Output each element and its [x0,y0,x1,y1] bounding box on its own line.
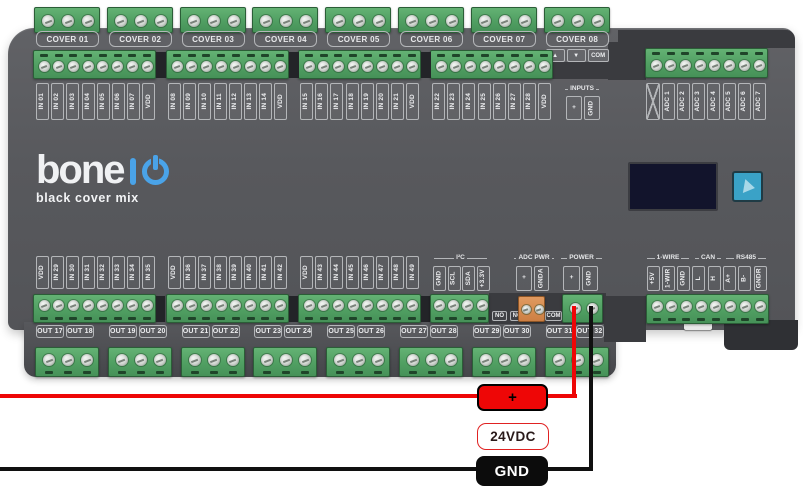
terminal-screw [695,60,706,71]
i2c-pin-label-text: SDA [465,271,472,285]
wire-slot [156,371,164,374]
terminal-screw [127,61,138,72]
terminal-screw [465,61,476,72]
terminal-screw [216,61,227,72]
input-label-text: IN 07 [130,93,137,110]
input-label-text: IN 49 [410,264,417,281]
wire-slot [349,54,357,57]
wire-slot [301,371,309,374]
wire-slot [118,371,126,374]
input-label: VDD [36,256,49,289]
input-label-text: IN 21 [394,93,401,110]
wire-slot [40,54,48,57]
adc-label: ADC 7 [753,83,766,120]
input-label-text: IN 47 [379,264,386,281]
terminal-screw [479,15,491,27]
terminal-screw [154,354,166,366]
input-label: IN 21 [391,83,404,120]
terminal-screw [348,300,359,311]
input-label: IN 02 [51,83,64,120]
terminal-screw [725,301,736,312]
wire-slot [727,318,735,321]
comm-pin-label: GNDR [754,266,767,291]
adc-side-recess [608,42,646,80]
wire-slot [191,371,199,374]
terminal-screw [450,61,461,72]
wire-slot [697,318,705,321]
terminal-screw [39,61,50,72]
terminal-screw [53,61,64,72]
input-terminal-bottom-3 [298,294,421,323]
input-label-text: IN 14 [262,93,269,110]
input-label-text: IN 28 [526,93,533,110]
wire-slot [69,54,77,57]
comm-pin-label: 1-WIR [662,266,675,291]
cover-label-7: COVER 07 [473,31,536,47]
input-label-text: IN 25 [481,93,488,110]
wire-slot [364,317,372,320]
wire-slot [540,54,548,57]
logo-text-bone: bone [36,155,124,186]
logo-subtitle: black cover mix [36,191,236,205]
output-terminal-3 [181,347,245,377]
terminal-screw [112,300,123,311]
terminal-screw [68,300,79,311]
input-label: IN 33 [112,256,125,289]
input-label: IN 48 [391,256,404,289]
input-label-text: IN 15 [303,93,310,110]
input-label: IN 43 [315,256,328,289]
input-label: IN 05 [97,83,110,120]
input-label-text: IN 31 [85,264,92,281]
terminal-separator [421,296,430,322]
wire-slot [114,54,122,57]
terminal-screw [39,300,50,311]
terminal-screw [709,60,720,71]
terminal-screw [208,15,220,27]
i2c-pin-label: SDA [462,266,475,291]
output-label: OUT 26 [357,325,385,338]
i2c-pin-label-text: +3.3V [480,269,487,287]
cover-label-3: COVER 03 [182,31,245,47]
input-terminal-bottom-1 [33,294,156,323]
input-label-text: VDD [39,265,46,279]
terminal-screw [228,15,240,27]
inputs-header: INPUTS [563,84,601,94]
output-label: OUT 25 [327,325,355,338]
input-label: IN 32 [97,256,110,289]
terminal-screw [446,15,458,27]
terminal-screw [755,301,766,312]
wire-slot [210,371,218,374]
menu-button[interactable] [732,171,763,202]
terminal-screw [572,15,584,27]
terminal-separator [289,296,298,322]
input-label-text: IN 01 [39,93,46,110]
input-label-text: IN 10 [202,93,209,110]
terminal-screw [275,300,286,311]
wire-slot [435,317,443,320]
input-label: IN 06 [112,83,125,120]
input-label-text: IN 39 [232,264,239,281]
cursor-icon [742,179,755,195]
input-label-text: IN 43 [318,264,325,281]
wire-slot [409,371,417,374]
adc-label: ADC 1 [662,83,675,120]
output-label: OUT 31 [546,325,574,338]
terminal-screw [353,15,365,27]
input-label-text: VDD [146,94,153,108]
input-label: IN 20 [376,83,389,120]
terminal-screw [299,354,311,366]
wire-slot [55,54,63,57]
input-label: IN 38 [214,256,227,289]
input-label: VDD [406,83,419,120]
terminal-screw [426,354,438,366]
input-label: IN 16 [315,83,328,120]
input-terminal-top-2 [166,50,289,79]
i2c-terminal [430,294,489,323]
wire-slot [137,371,145,374]
input-label: IN 03 [66,83,79,120]
wire-slot [481,54,489,57]
terminal-screw [518,354,530,366]
terminal-screw [373,15,385,27]
lower-right-recess [604,296,646,342]
output-label: OUT 23 [254,325,282,338]
terminal-screw [172,300,183,311]
wire-slot [496,54,504,57]
terminal-screw [188,15,200,27]
boneio-wiring-diagram: bone black cover mix + 24VDC GND COVER 0… [0,0,803,494]
wire-slot [188,54,196,57]
input-terminal-top-1 [33,50,156,79]
wire-slot [667,52,675,55]
wire-slot [217,317,225,320]
boneio-logo: bone black cover mix [36,148,236,210]
terminal-screw [275,61,286,72]
terminal-screw [651,60,662,71]
wire-slot [64,371,72,374]
output-label: OUT 17 [36,325,64,338]
cover-terminal-1 [34,7,100,33]
wire-slot [276,54,284,57]
wire-slot [555,371,563,374]
terminal-screw [434,300,445,311]
wire-slot [682,318,690,321]
input-label: IN 49 [406,256,419,289]
wire-slot [229,371,237,374]
wire-slot [128,54,136,57]
terminal-screw [666,301,677,312]
output-terminal-6 [399,347,463,377]
adc-label: ADC 4 [707,83,720,120]
input-label-text: IN 23 [450,93,457,110]
output-terminal-5 [326,347,390,377]
input-label-text: IN 11 [217,93,224,109]
wire-slot [320,317,328,320]
power-gnd-label: GND [582,266,598,291]
wire-slot [711,52,719,55]
input-label: IN 45 [346,256,359,289]
wire-slot [99,317,107,320]
inputs-plus-label: + [566,96,582,120]
output-label: OUT 18 [66,325,94,338]
input-label-text: IN 22 [435,93,442,110]
input-terminal-top-3 [298,50,421,79]
input-label: IN 13 [244,83,257,120]
wire-slot [99,54,107,57]
input-label-text: IN 03 [70,93,77,110]
terminal-screw [116,354,128,366]
output-terminal-7 [472,347,536,377]
wire-slot [393,54,401,57]
terminal-screw [426,15,438,27]
comm-pin-label-text: 1-WIR [665,269,672,288]
wire-slot [128,317,136,320]
wire-slot [501,371,509,374]
output-label: OUT 28 [430,325,458,338]
wire-slot [202,54,210,57]
comm-pin-label-text: GND [680,271,687,286]
input-label: IN 01 [36,83,49,120]
terminal-screw [334,354,346,366]
terminal-screw [172,61,183,72]
terminal-screw [652,301,663,312]
terminal-screw [208,354,220,366]
terminal-screw [230,300,241,311]
input-label-text: IN 48 [394,264,401,281]
input-label: IN 34 [127,256,140,289]
cover08-recess [546,62,612,79]
terminal-screw [348,61,359,72]
wire-slot [408,54,416,57]
terminal-screw [477,300,488,311]
input-label-text: IN 36 [186,264,193,281]
terminal-screw [377,61,388,72]
wire-slot [355,371,363,374]
cover-terminal-3 [180,7,246,33]
input-label: IN 46 [361,256,374,289]
terminal-screw [539,61,550,72]
adc-label: ADC 3 [692,83,705,120]
input-label-text: VDD [278,94,285,108]
input-label: IN 36 [183,256,196,289]
input-label-text: IN 41 [262,264,269,281]
input-label-text: IN 34 [130,264,137,281]
terminal-screw [362,61,373,72]
input-label-text: IN 13 [247,93,254,110]
terminal-screw [280,354,292,366]
output-terminal-2 [108,347,172,377]
comm-header-rs485: RS485 [724,254,768,263]
terminal-screw [43,354,55,366]
input-label-text: IN 05 [100,93,107,110]
adc-label-text: ADC 3 [695,91,702,112]
input-label: IN 24 [462,83,475,120]
comm-pin-label-text: A+ [726,274,733,283]
cover-label-1: COVER 01 [36,31,99,47]
input-label: VDD [538,83,551,120]
wire-slot [84,54,92,57]
input-label: IN 35 [142,256,155,289]
input-label: IN 31 [82,256,95,289]
crossed-box-icon [646,83,660,120]
input-label-text: IN 16 [318,93,325,110]
wire-slot [452,54,460,57]
i2c-pin-label: +3.3V [477,266,490,291]
terminal-screw [227,354,239,366]
wire-slot [55,317,63,320]
terminal-screw [445,354,457,366]
comm-pin-label-text: +5V [650,272,657,284]
input-terminal-top-4 [430,50,553,79]
terminal-screw [494,61,505,72]
input-label-text: IN 04 [85,93,92,110]
cover-label-4: COVER 04 [254,31,317,47]
input-label-text: IN 20 [379,93,386,110]
terminal-screw [62,354,74,366]
comm-header-can: CAN [693,254,723,263]
terminal-screw [216,300,227,311]
wire-slot [681,52,689,55]
output-terminal-1 [35,347,99,377]
power-header: POWER [559,254,604,263]
terminal-screw [304,61,315,72]
adc-pwr-header: ADC PWR [512,254,556,263]
input-label-text: IN 29 [54,264,61,281]
terminal-screw [724,60,735,71]
input-label: IN 27 [508,83,521,120]
input-label-text: VDD [542,94,549,108]
terminal-screw [318,300,329,311]
input-label: IN 26 [493,83,506,120]
input-label: IN 40 [244,256,257,289]
terminal-screw [480,61,491,72]
terminal-screw [522,305,531,314]
terminal-separator [289,52,299,78]
input-label-text: IN 35 [146,264,153,281]
terminal-screw [260,300,271,311]
terminal-screw [68,61,79,72]
terminal-screw [407,61,418,72]
input-label: IN 37 [198,256,211,289]
terminal-screw [553,354,565,366]
terminal-screw [710,301,721,312]
terminal-screw [142,300,153,311]
terminal-screw [189,354,201,366]
input-label-text: IN 45 [349,264,356,281]
terminal-screw [97,61,108,72]
terminal-screw [333,15,345,27]
positive-wire-tag: + [477,384,548,411]
terminal-screw [509,61,520,72]
i2c-pin-label: GND [433,266,446,291]
wire-slot [261,54,269,57]
terminal-screw [112,61,123,72]
comm-pin-label: GND [677,266,690,291]
input-label-text: IN 37 [202,264,209,281]
inputs-gnd-label: GND [584,96,600,120]
wire-slot [756,318,764,321]
input-terminal-bottom-2 [166,294,289,323]
terminal-screw [592,15,604,27]
terminal-screw [245,300,256,311]
input-label: IN 44 [330,256,343,289]
cover-label-5: COVER 05 [327,31,390,47]
adc-label-text: ADC 2 [680,91,687,112]
input-label: IN 10 [198,83,211,120]
input-label-text: IN 38 [217,264,224,281]
wire-slot [652,52,660,55]
logo-text-io [130,150,176,186]
wire-slot [437,54,445,57]
cover-terminal-5 [325,7,391,33]
terminal-screw [280,15,292,27]
input-label: IN 29 [51,256,64,289]
adc-label: ADC 5 [723,83,736,120]
oled-display [628,162,718,211]
terminal-screw [260,61,271,72]
wire-slot [712,318,720,321]
output-terminal-4 [253,347,317,377]
cover-label-6: COVER 06 [400,31,463,47]
terminal-screw [377,300,388,311]
wire-slot [114,317,122,320]
wire-slot [334,317,342,320]
terminal-screw [680,60,691,71]
input-label: IN 07 [127,83,140,120]
comm-header-1-wire: 1-WIRE [645,254,691,263]
relay-mark-label: COM [545,311,562,321]
wire-slot [305,317,313,320]
terminal-separator [421,52,431,78]
input-label-text: IN 18 [349,93,356,110]
wire-slot [188,317,196,320]
cover08-pin-label: ▼ [567,49,586,62]
input-label: IN 14 [259,83,272,120]
adc-pwr-gnda-label-text: GNDA [538,269,545,289]
adc-label: ADC 2 [677,83,690,120]
input-label: VDD [274,83,287,120]
wire-slot [393,317,401,320]
wire-slot [428,371,436,374]
terminal-screw [696,301,707,312]
input-label: VDD [142,83,155,120]
terminal-screw [739,60,750,71]
input-label: IN 11 [214,83,227,120]
terminal-separator [156,296,165,322]
comm-pin-label-text: L [696,276,703,280]
input-label: IN 12 [229,83,242,120]
wire-slot [593,371,601,374]
input-label-text: IN 24 [466,93,473,110]
wire-slot [261,317,269,320]
comm-pin-label-text: H [711,276,718,281]
comm-terminal [646,294,769,324]
wire-slot [84,317,92,320]
wire-slot [379,317,387,320]
terminal-screw [42,15,54,27]
input-label-text: IN 42 [278,264,285,281]
terminal-screw [499,354,511,366]
wire-slot [755,52,763,55]
adc-pwr-gnda-label: GNDA [534,266,549,291]
wire-slot [478,317,486,320]
cover-label-2: COVER 02 [109,31,172,47]
input-label: IN 17 [330,83,343,120]
input-label: IN 19 [361,83,374,120]
